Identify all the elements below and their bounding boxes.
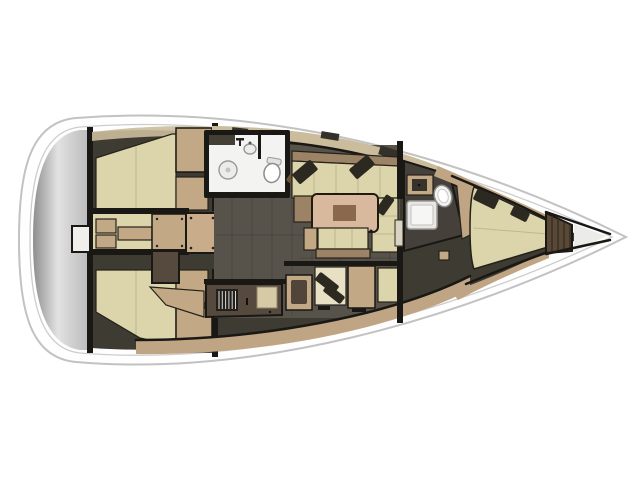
galley-handle (246, 298, 248, 305)
bulkhead-top (397, 141, 403, 199)
galley-counter-aft (152, 251, 179, 283)
head-cabinet (209, 135, 235, 145)
screw (212, 247, 215, 250)
settee-armrest (294, 196, 312, 222)
engine-box-small-2 (96, 235, 116, 248)
settee-backrest-bottom (316, 249, 370, 258)
yacht-floor-plan: Sailing yacht interior layout plan, top … (0, 0, 640, 480)
engine-box-small-1 (96, 219, 116, 233)
screw (190, 247, 193, 250)
shower-drain-center (226, 168, 231, 173)
screw (156, 218, 158, 220)
stove-grille (216, 289, 238, 311)
yacht-floor-plan-page: Sailing yacht interior layout plan, top … (0, 0, 640, 480)
settee-seat-bottom (318, 228, 368, 249)
shower-hose-icon (239, 140, 241, 146)
sink-cover (257, 287, 277, 308)
fwd-step (439, 251, 449, 260)
nav-cabinet-inset (291, 280, 307, 304)
galley-knob (269, 311, 271, 313)
sink-basin (244, 144, 256, 154)
screw (181, 218, 183, 220)
faucet (249, 142, 252, 145)
bulkhead-bottom (397, 247, 403, 323)
screw (181, 245, 183, 247)
nav-wall (284, 261, 400, 266)
engine-shaft-box (118, 227, 152, 240)
cabin-door (395, 220, 403, 246)
engine-compartment (91, 208, 189, 255)
chart-table (348, 266, 375, 308)
nav-handle (318, 306, 330, 310)
screw (212, 217, 215, 220)
head-partition (258, 135, 261, 159)
fwd-shower-inner (411, 205, 433, 225)
locker (176, 177, 208, 210)
table-center-panel (333, 205, 356, 221)
nav-side-panel (378, 268, 398, 302)
settee-end-block (304, 228, 317, 250)
transom-gate (72, 226, 90, 252)
corridor-wall-top (91, 208, 189, 214)
fwd-faucet (418, 184, 421, 187)
screw (156, 245, 158, 247)
saloon (292, 151, 398, 258)
table-leg (370, 230, 373, 233)
nav-handle (352, 308, 366, 312)
screw (190, 217, 193, 220)
